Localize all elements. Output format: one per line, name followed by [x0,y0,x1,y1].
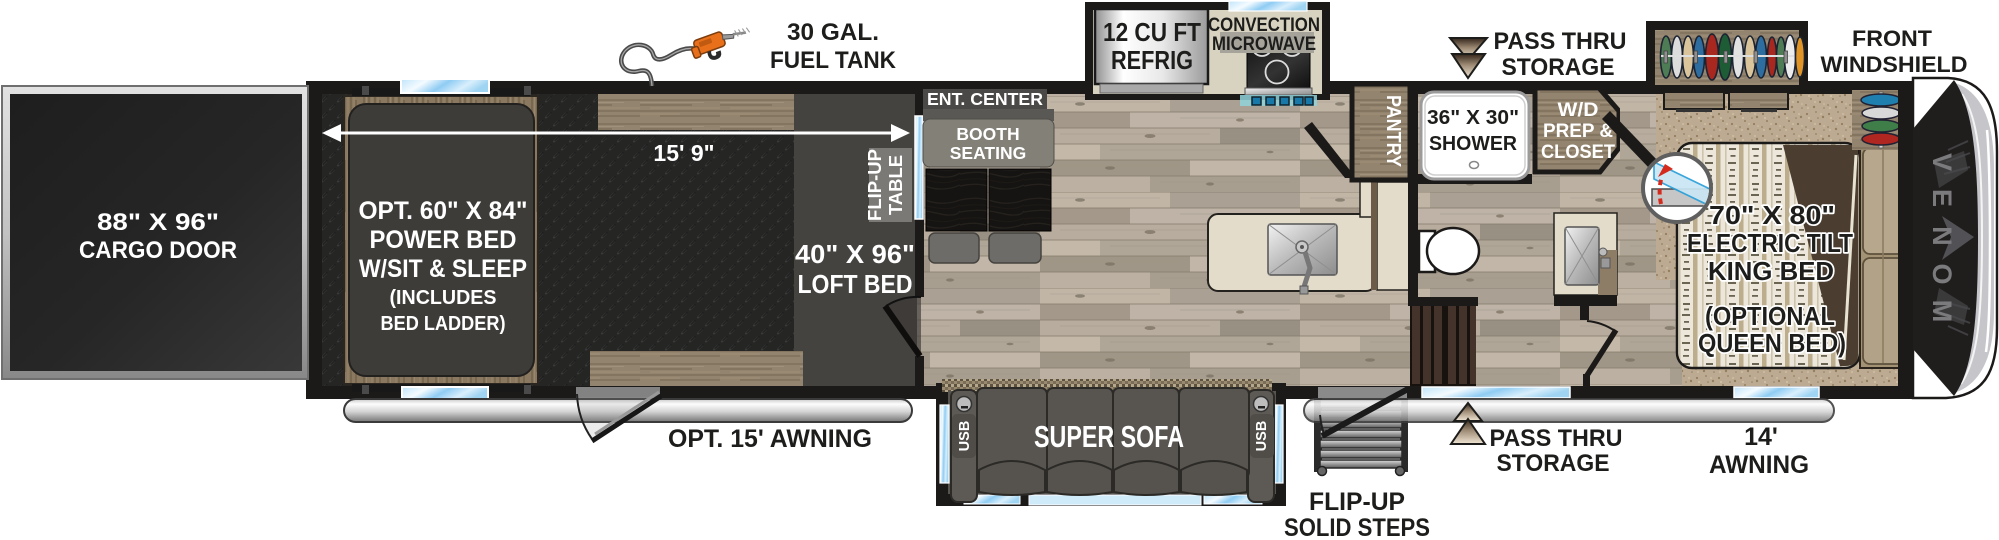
svg-text:O: O [1927,263,1957,284]
svg-text:BOOTH: BOOTH [956,124,1019,144]
svg-text:FRONT: FRONT [1852,26,1933,51]
svg-text:STORAGE: STORAGE [1502,54,1615,81]
svg-text:(INCLUDES: (INCLUDES [390,287,497,309]
svg-text:40" X 96": 40" X 96" [795,239,915,269]
svg-text:36" X 30": 36" X 30" [1427,107,1519,129]
svg-text:SHOWER: SHOWER [1429,133,1518,155]
svg-text:70" X 80": 70" X 80" [1709,200,1835,230]
svg-text:M: M [1927,300,1957,323]
svg-text:PASS THRU: PASS THRU [1490,425,1623,452]
svg-text:W/D: W/D [1558,99,1599,121]
svg-text:PREP &: PREP & [1543,120,1613,142]
svg-text:AWNING: AWNING [1709,451,1809,479]
svg-text:KING BED: KING BED [1708,256,1834,286]
svg-text:LOFT BED: LOFT BED [798,269,913,299]
svg-text:CONVECTION: CONVECTION [1208,15,1320,36]
svg-text:SEATING: SEATING [950,143,1027,163]
svg-text:SUPER SOFA: SUPER SOFA [1034,419,1184,454]
svg-text:N: N [1927,226,1957,246]
svg-text:PASS THRU: PASS THRU [1494,28,1627,55]
svg-text:MICROWAVE: MICROWAVE [1212,34,1316,55]
svg-text:FLIP-UP: FLIP-UP [1309,488,1405,516]
svg-text:88" X 96": 88" X 96" [97,209,219,236]
svg-text:POWER BED: POWER BED [370,226,517,254]
svg-text:14': 14' [1744,423,1778,451]
svg-text:BED LADDER): BED LADDER) [381,313,506,335]
svg-text:CARGO DOOR: CARGO DOOR [79,237,237,264]
svg-text:STORAGE: STORAGE [1497,450,1610,477]
svg-text:USB: USB [957,421,973,452]
svg-text:REFRIG: REFRIG [1111,45,1193,75]
svg-text:OPT. 60" X 84": OPT. 60" X 84" [359,197,528,225]
svg-text:PANTRY: PANTRY [1382,95,1405,167]
svg-text:W/SIT & SLEEP: W/SIT & SLEEP [359,255,527,283]
svg-text:WINDSHIELD: WINDSHIELD [1821,52,1968,77]
svg-text:FLIP-UP: FLIP-UP [864,149,885,221]
svg-text:ELECTRIC TILT: ELECTRIC TILT [1687,228,1853,258]
svg-text:SOLID STEPS: SOLID STEPS [1284,514,1430,540]
svg-text:(OPTIONAL: (OPTIONAL [1705,301,1835,331]
svg-text:CLOSET: CLOSET [1541,141,1615,163]
svg-text:FUEL TANK: FUEL TANK [770,47,897,74]
svg-text:USB: USB [1254,421,1270,452]
svg-text:E: E [1927,189,1957,207]
svg-text:TABLE: TABLE [885,155,906,215]
svg-text:15' 9": 15' 9" [653,140,714,166]
svg-text:ENT. CENTER: ENT. CENTER [927,89,1043,109]
svg-text:V: V [1927,153,1957,171]
svg-text:30 GAL.: 30 GAL. [787,19,879,46]
svg-text:OPT. 15' AWNING: OPT. 15' AWNING [668,425,872,453]
svg-text:QUEEN BED): QUEEN BED) [1698,328,1846,358]
svg-text:12 CU FT: 12 CU FT [1103,17,1201,47]
